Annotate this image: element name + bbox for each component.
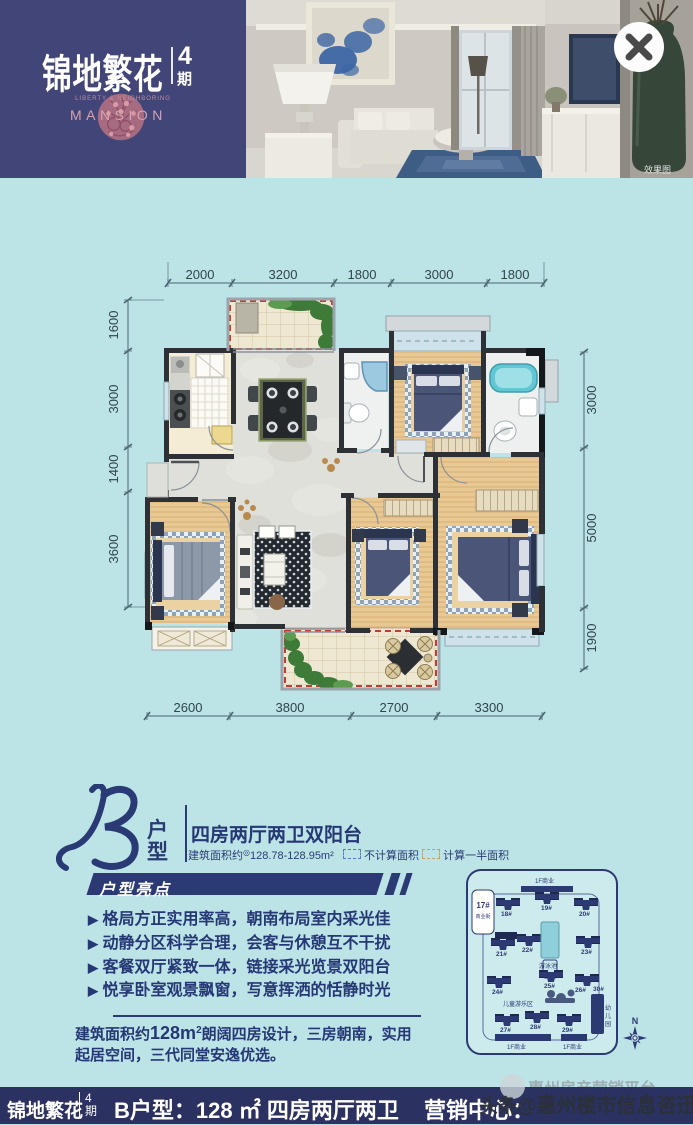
svg-text:30#: 30# xyxy=(593,986,604,993)
svg-text:20#: 20# xyxy=(579,911,590,918)
svg-text:2700: 2700 xyxy=(380,700,409,715)
svg-text:1400: 1400 xyxy=(106,455,121,484)
svg-text:19#: 19# xyxy=(541,905,552,912)
svg-text:N: N xyxy=(632,1016,639,1026)
svg-text:3000: 3000 xyxy=(106,385,121,414)
svg-text:儿: 儿 xyxy=(605,1013,611,1020)
svg-text:22#: 22# xyxy=(522,947,533,954)
svg-text:商业街: 商业街 xyxy=(475,913,490,920)
svg-text:2000: 2000 xyxy=(186,267,215,282)
svg-text:3200: 3200 xyxy=(269,267,298,282)
svg-text:5000: 5000 xyxy=(584,514,599,543)
svg-text:23#: 23# xyxy=(581,949,592,956)
svg-text:3000: 3000 xyxy=(425,267,454,282)
svg-text:3300: 3300 xyxy=(475,700,504,715)
svg-text:1600: 1600 xyxy=(106,311,121,340)
svg-text:1F商业: 1F商业 xyxy=(563,1043,582,1051)
svg-text:18#: 18# xyxy=(501,911,512,918)
svg-text:效果图: 效果图 xyxy=(644,164,671,175)
svg-text:儿童游乐区: 儿童游乐区 xyxy=(503,1000,533,1008)
svg-text:25#: 25# xyxy=(544,983,555,990)
svg-text:28#: 28# xyxy=(530,1024,541,1031)
svg-text:2600: 2600 xyxy=(174,700,203,715)
svg-text:17#: 17# xyxy=(476,901,490,910)
svg-text:24#: 24# xyxy=(492,989,503,996)
svg-text:幼: 幼 xyxy=(605,1004,611,1012)
svg-text:1F商业: 1F商业 xyxy=(535,877,554,885)
svg-text:3600: 3600 xyxy=(106,535,121,564)
svg-text:园: 园 xyxy=(605,1021,611,1028)
svg-text:1900: 1900 xyxy=(584,624,599,653)
svg-text:26#: 26# xyxy=(575,987,586,994)
svg-text:29#: 29# xyxy=(562,1027,573,1034)
svg-text:1800: 1800 xyxy=(501,267,530,282)
svg-text:3000: 3000 xyxy=(584,386,599,415)
svg-text:27#: 27# xyxy=(500,1027,511,1034)
svg-text:1F商业: 1F商业 xyxy=(507,1043,526,1051)
svg-text:21#: 21# xyxy=(496,951,507,958)
svg-text:游泳池: 游泳池 xyxy=(539,962,557,970)
svg-text:3800: 3800 xyxy=(276,700,305,715)
svg-text:1800: 1800 xyxy=(348,267,377,282)
